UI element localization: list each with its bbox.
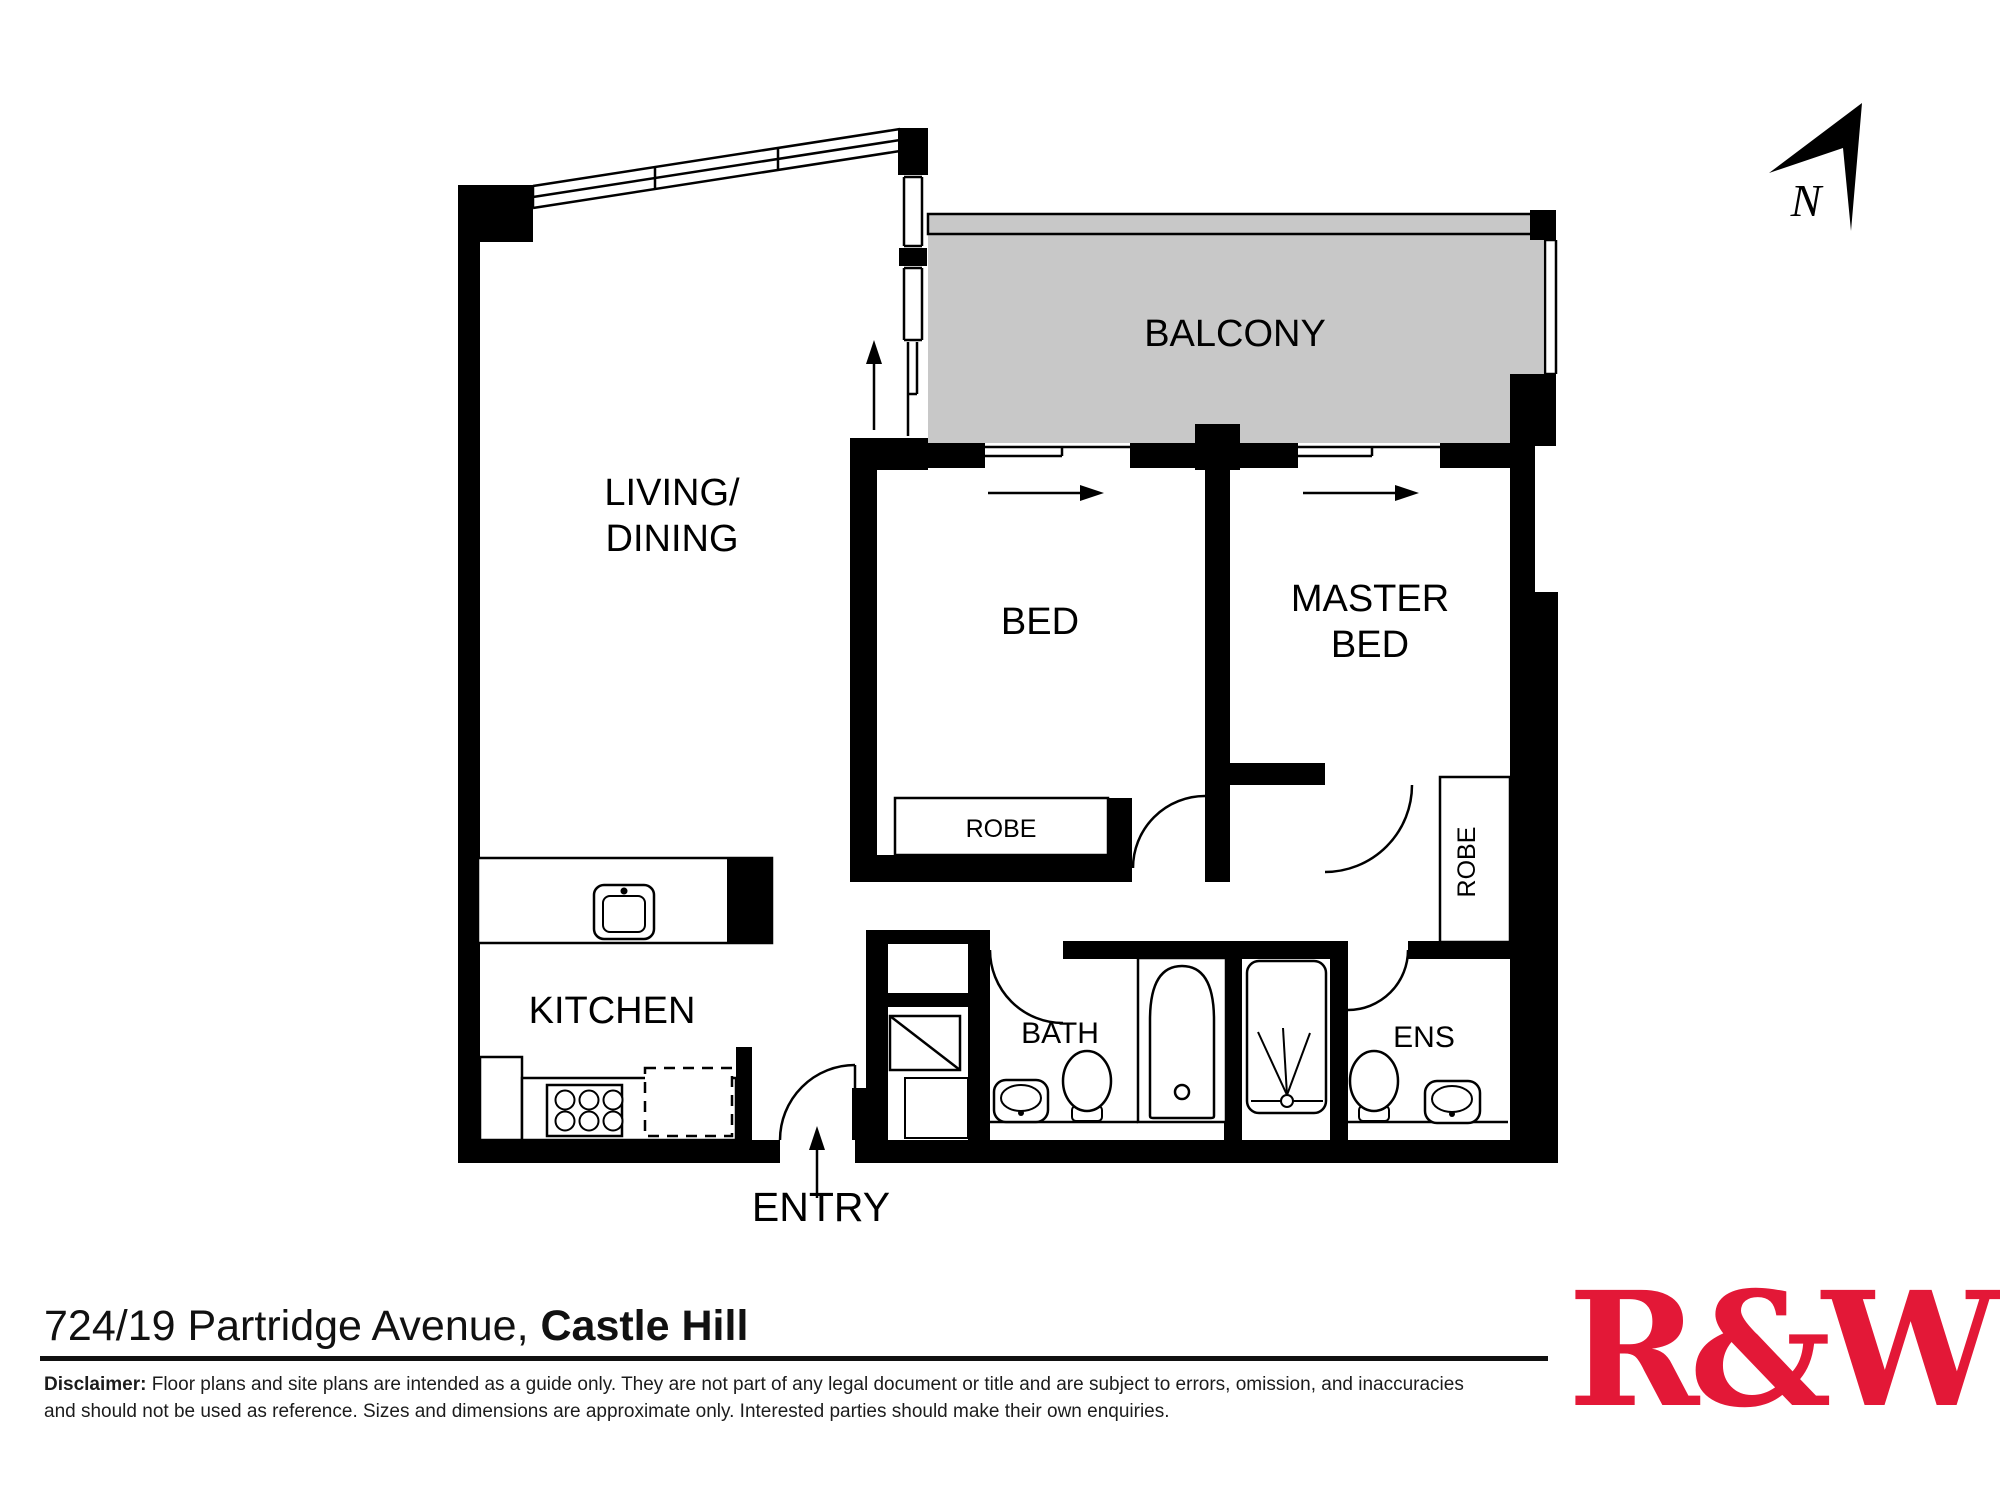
ens-fixtures: [1348, 1051, 1508, 1123]
wall-balcony-mid-pier: [1195, 424, 1240, 470]
label-bed: BED: [1001, 601, 1079, 643]
wall-ens-top: [1408, 941, 1510, 959]
wall-closet-right: [968, 942, 990, 1140]
wall-right-inner: [1510, 446, 1535, 1163]
cooktop-icon: [547, 1085, 623, 1136]
wall-left: [458, 185, 480, 1163]
kitchen-island-endcap: [727, 858, 772, 943]
door-arc-bed: [1133, 796, 1205, 868]
dishwasher-dashed-icon: [645, 1068, 732, 1136]
north-arrow-icon: N: [1769, 103, 1862, 231]
divider-rule: [40, 1356, 1548, 1361]
label-ens: ENS: [1393, 1021, 1455, 1054]
label-robe-bed: ROBE: [966, 815, 1037, 843]
label-living: LIVING/: [604, 472, 740, 514]
wall-balcony-rail-end: [1530, 210, 1556, 240]
kitchen-sink-icon: [594, 885, 654, 939]
label-entry: ENTRY: [752, 1184, 890, 1230]
disclaimer-label: Disclaimer:: [44, 1374, 146, 1395]
washer-diagonal-icon: [890, 1016, 960, 1070]
door-arc-master: [1325, 785, 1412, 872]
wall-closet-top: [866, 930, 990, 944]
ens-toilet-icon: [1350, 1051, 1398, 1121]
floor-plan-page: { "floor_plan": { "north_indicator": "N"…: [0, 0, 2000, 1500]
laundry-cabinet: [905, 1078, 968, 1138]
laundry-fixtures: [890, 1016, 968, 1138]
door-arc-bath: [990, 950, 1063, 1023]
wall-closet-divider: [888, 993, 968, 1007]
door-arc-ens: [1348, 950, 1408, 1010]
wall-kitchen-end: [736, 1047, 752, 1140]
wall-shower-right: [1330, 941, 1348, 1140]
address-suburb: Castle Hill: [540, 1302, 748, 1350]
address-title: 724/19 Partridge Avenue, Castle Hill: [44, 1302, 748, 1351]
sliding-door-master: [1298, 447, 1440, 456]
sliding-door-living: [908, 342, 917, 436]
wall-master-bottom: [1205, 763, 1325, 785]
window-angled-top: [533, 129, 900, 208]
shower-fixtures: [1247, 961, 1326, 1113]
agency-logo: R&W: [1568, 1272, 1968, 1430]
address-street: 724/19 Partridge Avenue,: [44, 1302, 540, 1350]
wall-right-outer: [1533, 592, 1558, 1163]
wall-bath-top: [1063, 941, 1330, 959]
sliding-door-bed: [985, 447, 1130, 456]
disclaimer-line2: and should not be used as reference. Siz…: [44, 1401, 1170, 1422]
label-balcony: BALCONY: [1144, 313, 1326, 355]
label-master-line1: MASTER: [1291, 578, 1449, 620]
wall-balcony-right-block: [1510, 374, 1556, 446]
disclaimer: Disclaimer: Floor plans and site plans a…: [44, 1372, 1584, 1426]
bath-toilet-icon: [1063, 1051, 1111, 1121]
wall-robe-endcap: [1108, 798, 1132, 855]
balcony-rail: [928, 214, 1543, 234]
bath-sink-icon: [994, 1080, 1048, 1122]
wall-bed-left: [850, 470, 877, 882]
label-bath: BATH: [1021, 1017, 1099, 1050]
label-dining: DINING: [606, 518, 739, 560]
wall-top-left-block: [458, 185, 533, 242]
window-balcony-right: [1545, 240, 1556, 374]
arrow-living-slider: [866, 340, 882, 430]
wall-bed-master-divider: [1205, 470, 1230, 882]
arrow-bed-slider: [988, 485, 1104, 501]
north-label: N: [1790, 175, 1824, 226]
label-robe-master: ROBE: [1453, 827, 1481, 898]
wall-bottom-right: [855, 1140, 1558, 1163]
disclaimer-line1: Floor plans and site plans are intended …: [146, 1374, 1463, 1395]
ens-sink-icon: [1425, 1081, 1480, 1123]
kitchen-corner-cabinet: [480, 1057, 522, 1140]
wall-top-right-block: [898, 128, 928, 175]
bathtub-icon: [1138, 958, 1226, 1122]
wall-window-sill: [899, 248, 927, 266]
label-kitchen: KITCHEN: [529, 990, 696, 1032]
wall-entry-stub: [852, 1088, 888, 1140]
wall-bed-bottom: [850, 855, 1132, 882]
wall-bottom-left: [458, 1140, 780, 1163]
arrow-master-slider: [1303, 485, 1419, 501]
label-master-line2: BED: [1331, 624, 1409, 666]
